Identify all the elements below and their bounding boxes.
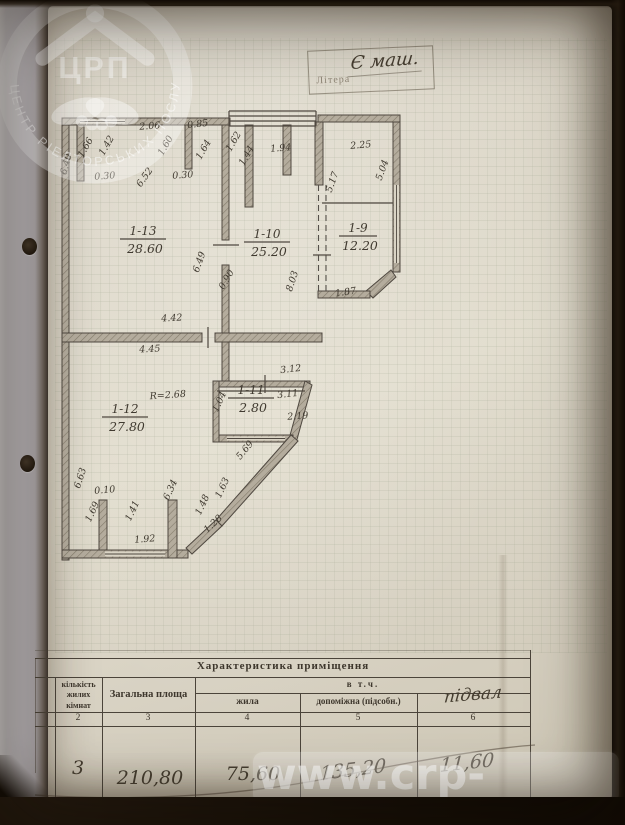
dimension-label: R=2.68 (148, 389, 186, 403)
room-area: 25.20 (250, 244, 287, 259)
dimension-label: 4.45 (138, 343, 161, 355)
dimension-label: 1.64 (194, 138, 214, 162)
stamp-label: Літера (316, 74, 350, 86)
table-line (35, 677, 531, 678)
binder-hole (22, 238, 37, 255)
photo-edge (0, 797, 625, 825)
room-number: 1-10 (254, 227, 281, 241)
dimension-label: 6.49 (191, 250, 209, 274)
column-header-total-area: Загальна площа (102, 689, 195, 700)
floor-plan: 2.060.851.942.251.661.421.601.641.621.44… (55, 105, 420, 570)
dimension-label: 1.44 (237, 144, 257, 168)
photo-edge (0, 0, 625, 8)
column-number: 6 (453, 713, 493, 723)
dimension-label: 1.42 (97, 134, 117, 158)
dimension-label: 0.10 (94, 484, 116, 497)
photo-edge (611, 0, 625, 825)
dimension-label: 6.52 (134, 166, 155, 190)
dimension-label: 0.90 (217, 268, 237, 292)
column-header-living-area: жила (195, 697, 300, 707)
dimension-label: 1.92 (134, 533, 156, 545)
table-title: Характеристика приміщення (35, 660, 531, 672)
dimension-label: 6.40 (59, 153, 75, 176)
stamp-handwritten-value: Є маш. (347, 47, 423, 77)
dimension-label: 5.04 (374, 158, 392, 182)
dimension-label: 0.85 (187, 118, 209, 131)
table-line (35, 726, 531, 727)
room-area: 12.20 (342, 238, 378, 253)
litera-stamp: Літера Є маш. (307, 45, 435, 94)
dimension-label: 2.19 (286, 410, 309, 423)
dimension-label: 0.30 (94, 170, 116, 182)
dimension-label: 6.63 (72, 466, 89, 490)
table-line (195, 677, 196, 797)
column-number: 5 (338, 713, 378, 723)
dimension-label: 1.60 (156, 134, 176, 158)
dimension-label: 2.06 (138, 120, 161, 133)
column-number: 4 (227, 713, 267, 723)
dimension-label: 6.34 (161, 478, 180, 502)
room-number: 1-11 (238, 383, 265, 397)
binder-hole (20, 455, 35, 472)
room-area: 27.80 (108, 419, 145, 434)
dimension-label: 8.03 (284, 269, 301, 293)
room-number: 1-9 (348, 221, 368, 235)
dimension-label: 1.94 (270, 142, 292, 155)
dimension-label: 1.63 (213, 476, 232, 500)
table-line (35, 658, 531, 659)
column-number: 2 (58, 713, 98, 723)
room-area: 28.60 (126, 241, 163, 256)
room-number: 1-12 (112, 402, 139, 416)
dimension-label: 3.11 (277, 388, 299, 401)
room-number: 1-13 (130, 224, 157, 238)
table-line (35, 650, 531, 651)
dimension-label: 3.12 (280, 363, 302, 376)
column-number: 3 (128, 713, 168, 723)
dimension-label: 0.30 (172, 169, 194, 181)
value-total-area: 210,80 (105, 767, 195, 789)
dimension-label: 4.42 (160, 312, 183, 324)
column-header-auxiliary-area: допоміжна (підсобн.) (300, 696, 417, 706)
room-labels: 1-1328.601-1025.201-912.201-112.801-1227… (102, 221, 378, 434)
dimension-label: 5.17 (324, 169, 342, 194)
dimension-label: 1.41 (123, 499, 142, 523)
dimension-label: 1.48 (193, 493, 212, 517)
room-area: 2.80 (238, 400, 267, 415)
dimension-label: 2.25 (349, 139, 372, 152)
photo-background: Літера Є маш. (0, 0, 625, 825)
stairs (229, 111, 316, 126)
column-header-rooms-count: кількість жилих кімнат (55, 680, 102, 711)
